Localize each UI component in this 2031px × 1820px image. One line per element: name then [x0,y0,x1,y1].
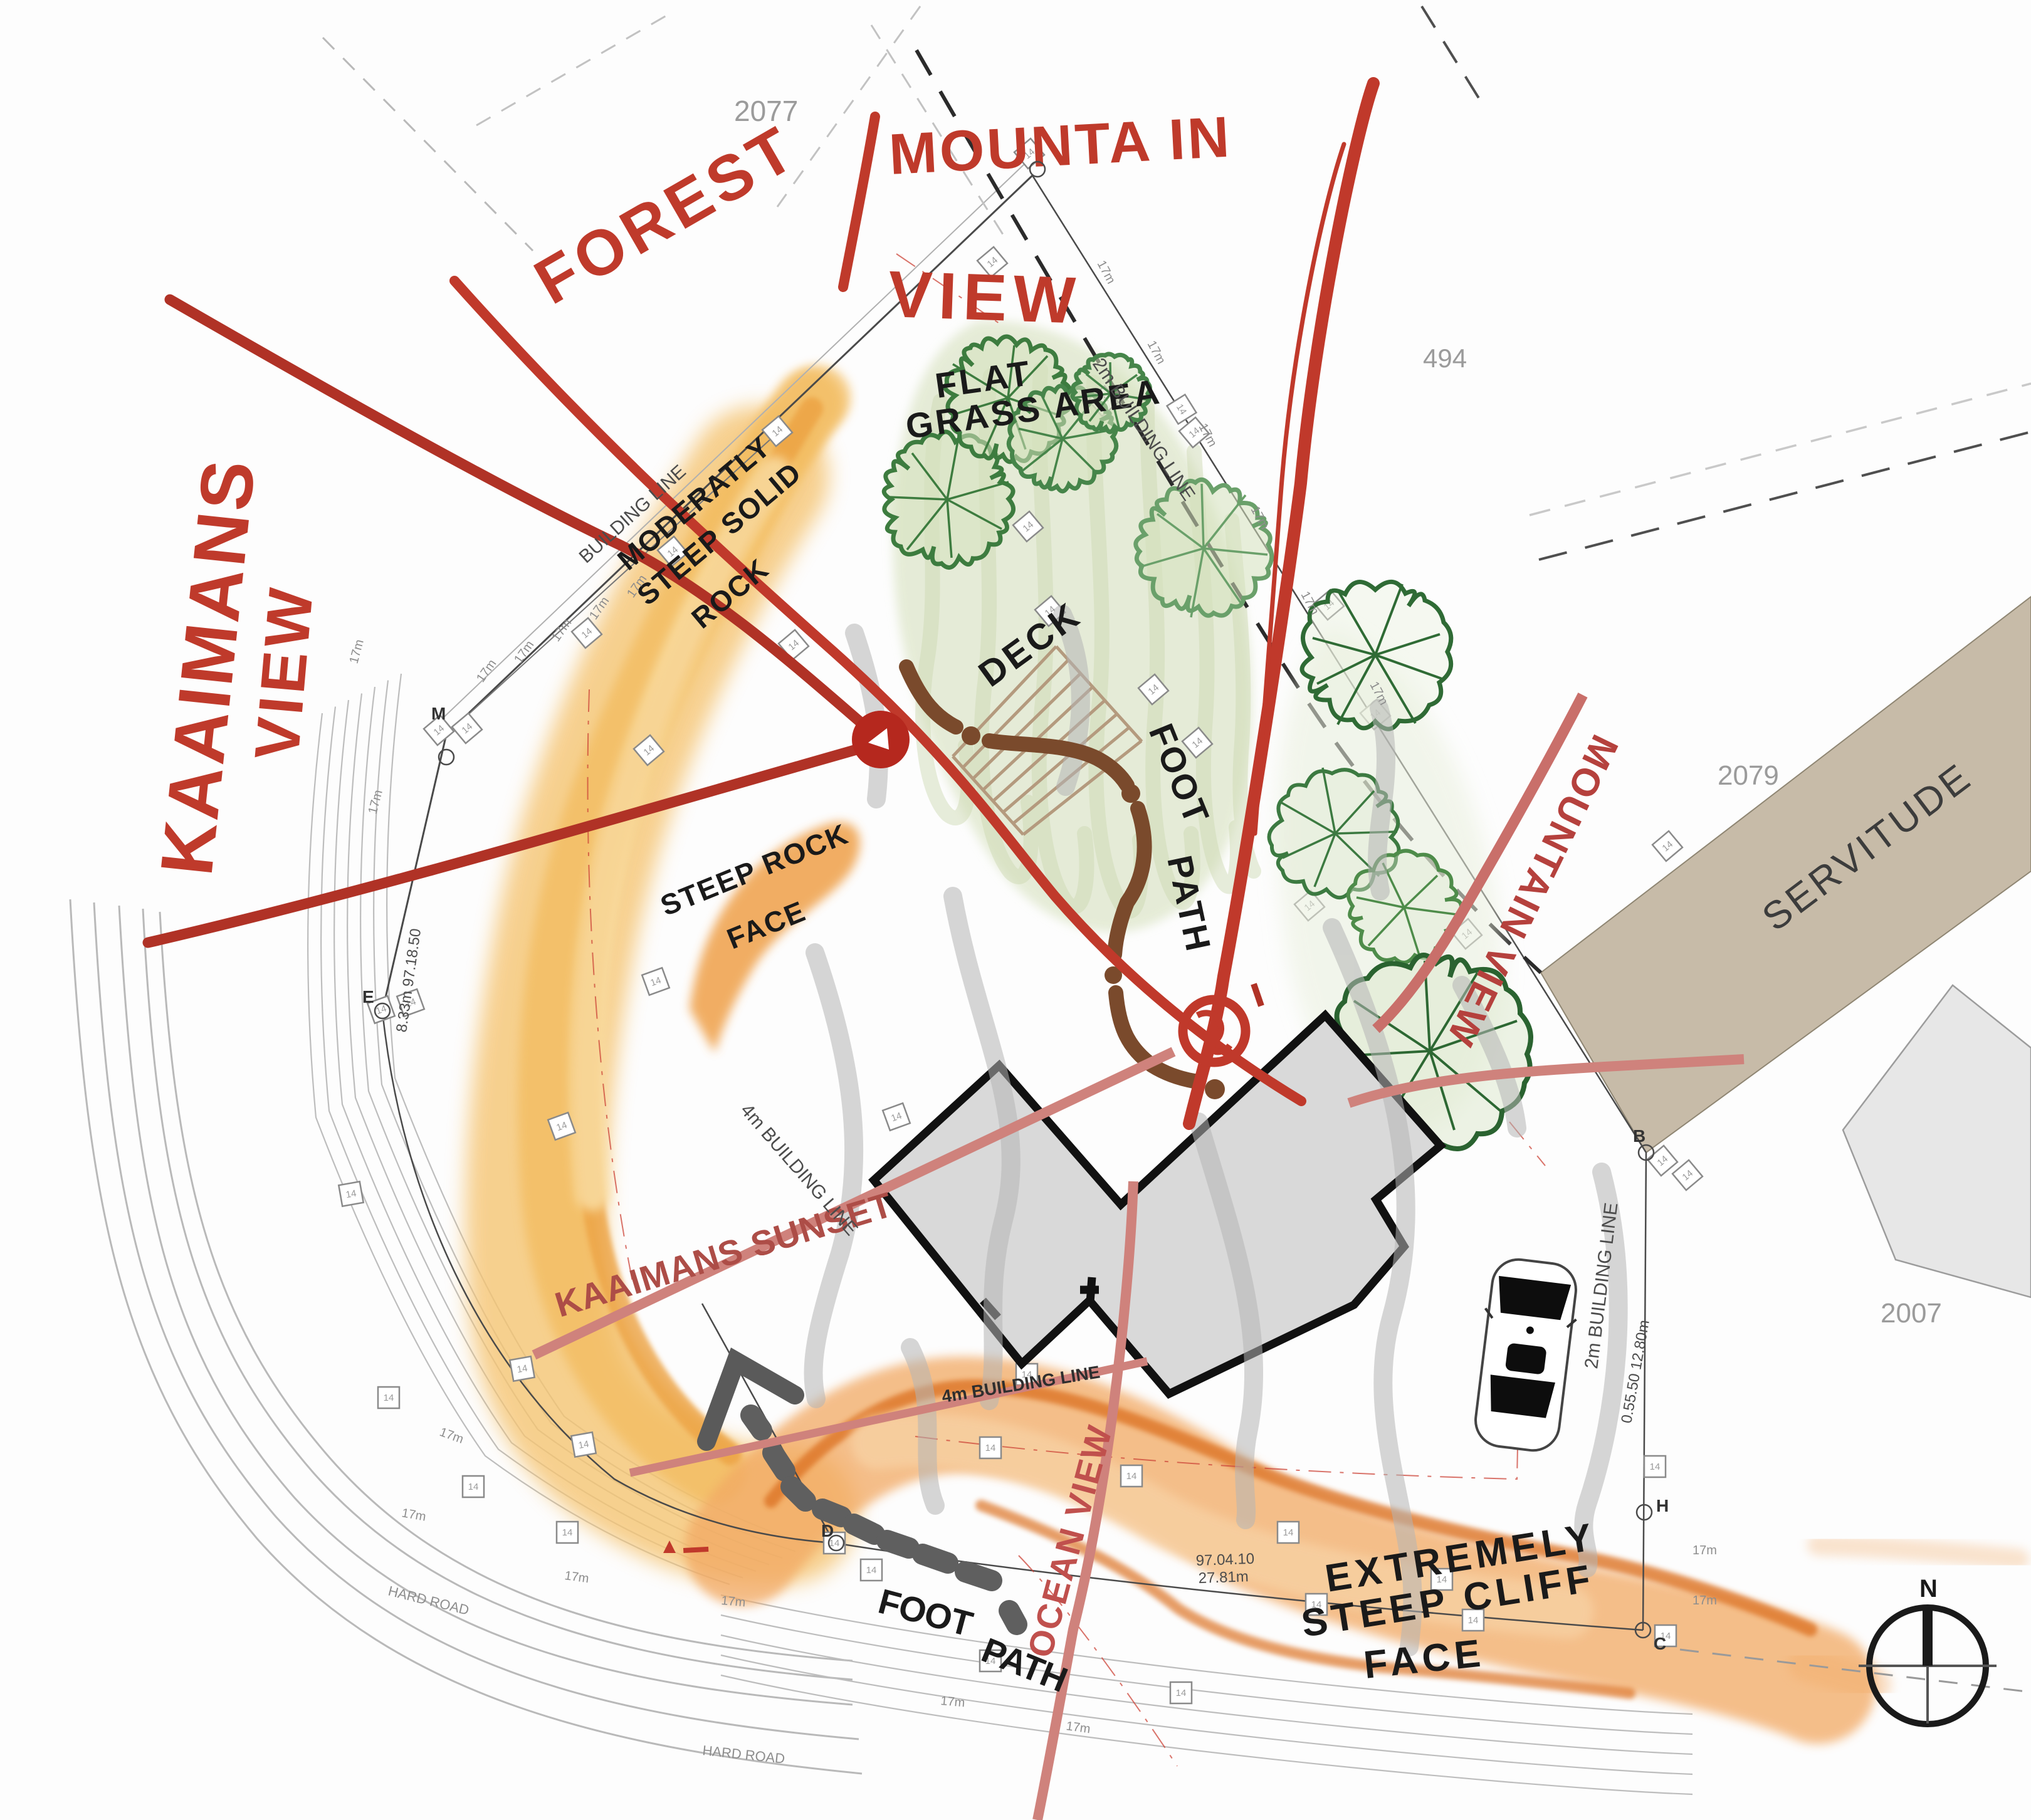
svg-text:2077: 2077 [734,95,798,127]
svg-text:494: 494 [1423,343,1467,373]
svg-text:2007: 2007 [1881,1298,1942,1329]
svg-text:14: 14 [1650,1462,1661,1472]
svg-text:14: 14 [468,1482,479,1492]
svg-text:17m: 17m [1692,1544,1717,1557]
svg-text:97.04.10: 97.04.10 [1195,1551,1254,1569]
svg-text:14: 14 [577,1439,589,1451]
svg-text:14: 14 [1176,1688,1187,1698]
svg-text:14: 14 [985,1443,996,1453]
svg-text:14: 14 [1126,1471,1137,1482]
svg-text:E: E [362,987,374,1007]
svg-text:14: 14 [516,1363,528,1376]
svg-text:M: M [431,704,446,723]
svg-text:VIEW: VIEW [887,258,1083,338]
svg-text:C: C [1654,1634,1666,1653]
svg-text:14: 14 [384,1393,394,1403]
svg-text:17m: 17m [1692,1594,1717,1608]
svg-text:27.81m: 27.81m [1198,1568,1249,1587]
svg-text:2079: 2079 [1718,760,1779,791]
svg-text:14: 14 [1283,1527,1294,1538]
svg-text:N: N [1919,1575,1938,1603]
svg-text:17m: 17m [940,1694,966,1710]
svg-text:14: 14 [866,1565,877,1576]
svg-text:H: H [1656,1496,1669,1515]
svg-text:17m: 17m [721,1594,747,1609]
svg-text:B: B [1633,1126,1645,1146]
svg-text:14: 14 [345,1188,357,1201]
svg-text:14: 14 [562,1527,573,1538]
